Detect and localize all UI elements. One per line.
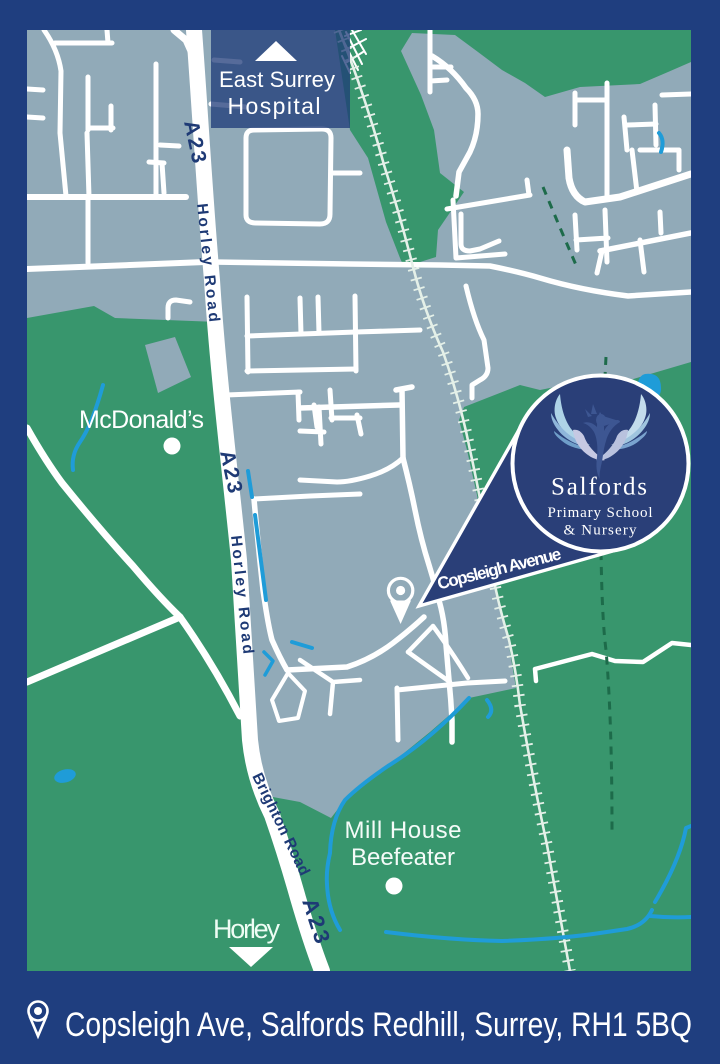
svg-text:& Nursery: & Nursery [564,523,638,539]
svg-text:Beefeater: Beefeater [351,844,455,871]
svg-text:Copsleigh Ave, Salfords Redhil: Copsleigh Ave, Salfords Redhill, Surrey,… [65,1006,692,1044]
svg-text:McDonald’s: McDonald’s [79,406,204,434]
svg-text:Primary School: Primary School [548,505,653,521]
svg-text:Mill House: Mill House [345,817,462,844]
svg-text:Hospital: Hospital [228,93,321,119]
svg-text:Horley: Horley [213,914,281,944]
svg-text:East Surrey: East Surrey [219,67,335,92]
